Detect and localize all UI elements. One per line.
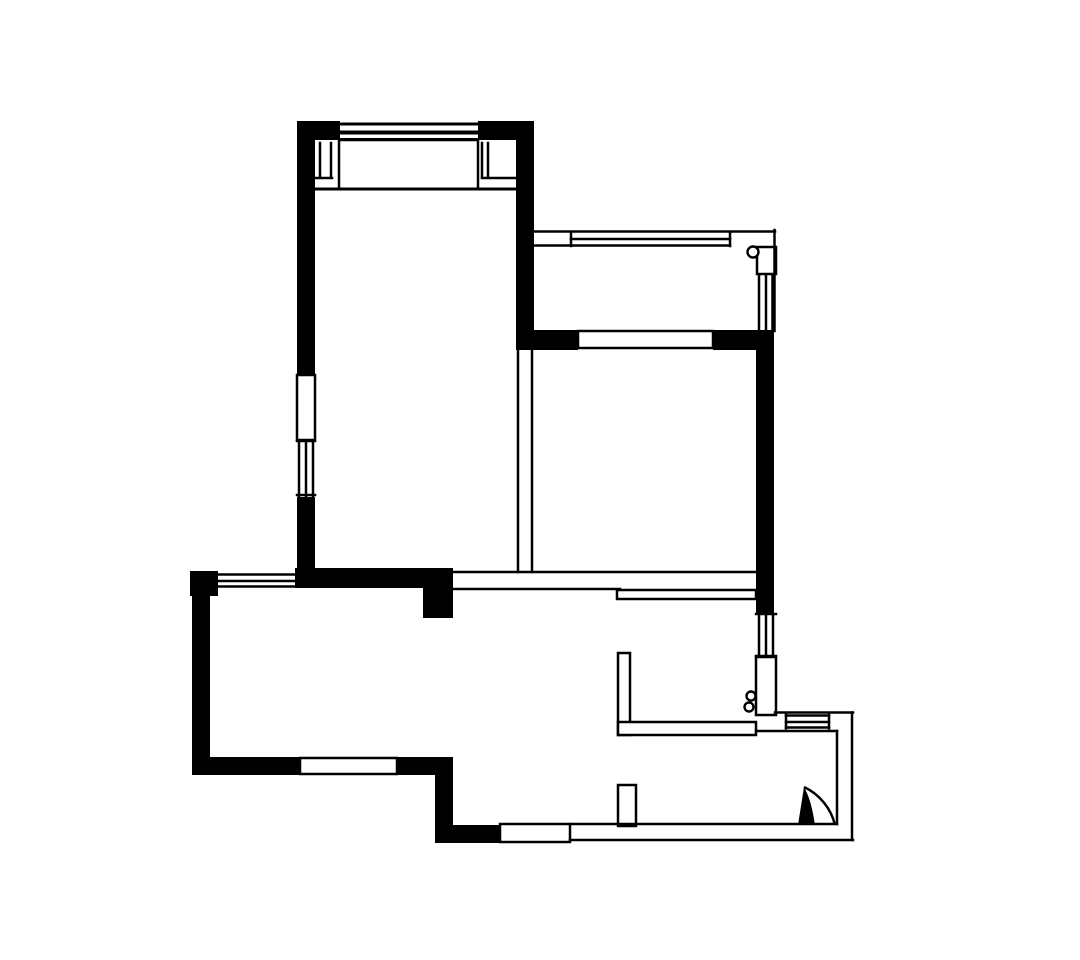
wall-segment (297, 121, 340, 140)
entry-door-symbol-layer (798, 787, 835, 825)
wall-segment (516, 121, 534, 350)
floor-plan-drawing (0, 0, 1080, 960)
drain-circle-icon (747, 692, 756, 701)
light-partition-or-window-panel (297, 375, 315, 440)
light-partition-or-window-panel (756, 657, 776, 715)
wall-segment (295, 568, 453, 588)
light-partition-or-window-panel (618, 785, 636, 826)
light-partition-or-window-panel (339, 140, 478, 189)
light-partition-or-window-panel (578, 331, 713, 348)
wall-segment (192, 757, 300, 775)
wall-segment (192, 571, 210, 775)
light-partition-or-window-panel (300, 758, 397, 774)
light-partition-or-window-panel (500, 824, 570, 842)
wall-segment (297, 121, 315, 377)
wall-segment (397, 757, 453, 775)
wall-segment (423, 588, 453, 618)
wall-segment (435, 825, 500, 843)
light-partition-or-window-panel (618, 722, 756, 735)
light-partition-or-window-panel (757, 247, 776, 274)
light-partition-or-window-panel (617, 590, 756, 599)
wall-segment (756, 330, 774, 613)
wall-segment (516, 330, 578, 350)
drain-circle-icon (745, 703, 754, 712)
floor-plan-page (0, 0, 1080, 960)
wall-segment (297, 497, 315, 572)
drain-circle-icon (748, 247, 759, 258)
